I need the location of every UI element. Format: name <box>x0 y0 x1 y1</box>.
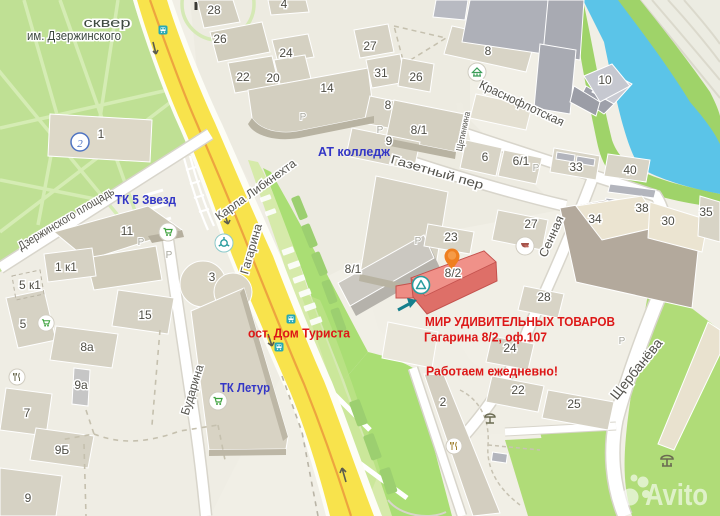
svg-text:38: 38 <box>635 201 649 215</box>
svg-text:35: 35 <box>699 205 713 219</box>
svg-text:6: 6 <box>482 150 489 164</box>
svg-text:22: 22 <box>236 70 250 84</box>
svg-text:8/1: 8/1 <box>411 123 428 137</box>
svg-text:им. Дзержинского: им. Дзержинского <box>27 28 121 43</box>
svg-text:3: 3 <box>209 270 216 284</box>
svg-text:28: 28 <box>537 290 551 304</box>
svg-text:6/1: 6/1 <box>513 154 530 168</box>
svg-text:2: 2 <box>77 138 83 150</box>
svg-text:ост. Дом Туриста: ост. Дом Туриста <box>248 326 351 341</box>
svg-text:P: P <box>166 250 173 261</box>
svg-text:33: 33 <box>569 160 583 174</box>
svg-text:Avito: Avito <box>645 477 708 512</box>
svg-text:ТК 5 Звезд: ТК 5 Звезд <box>115 192 177 207</box>
svg-text:АТ колледж: АТ колледж <box>318 144 391 159</box>
svg-text:2: 2 <box>440 395 447 409</box>
svg-text:1: 1 <box>98 127 105 141</box>
svg-text:9a: 9a <box>74 378 88 392</box>
svg-text:8: 8 <box>485 44 492 58</box>
svg-text:28: 28 <box>207 3 221 17</box>
svg-text:14: 14 <box>320 81 334 95</box>
svg-text:5: 5 <box>20 317 27 331</box>
svg-text:9: 9 <box>25 491 32 505</box>
svg-text:8/1: 8/1 <box>345 262 362 276</box>
svg-text:8a: 8a <box>80 340 94 354</box>
svg-text:25: 25 <box>567 397 581 411</box>
svg-text:20: 20 <box>266 71 280 85</box>
svg-text:P: P <box>619 336 626 347</box>
svg-text:15: 15 <box>138 308 152 322</box>
svg-text:P: P <box>138 237 145 248</box>
svg-text:P: P <box>415 236 422 247</box>
svg-text:7: 7 <box>24 406 31 420</box>
svg-text:40: 40 <box>623 163 637 177</box>
svg-text:34: 34 <box>588 212 602 226</box>
svg-text:27: 27 <box>363 39 377 53</box>
svg-text:23: 23 <box>444 230 458 244</box>
svg-text:31: 31 <box>374 66 388 80</box>
svg-text:1 к1: 1 к1 <box>55 260 77 274</box>
svg-text:5 к1: 5 к1 <box>19 278 41 292</box>
svg-text:8/2: 8/2 <box>445 266 462 280</box>
svg-text:24: 24 <box>279 46 293 60</box>
svg-text:26: 26 <box>213 32 227 46</box>
svg-text:Работаем ежедневно!: Работаем ежедневно! <box>426 364 558 379</box>
svg-text:4: 4 <box>281 0 288 11</box>
svg-text:8: 8 <box>385 98 392 112</box>
svg-text:Гагарина 8/2, оф.107: Гагарина 8/2, оф.107 <box>424 330 547 345</box>
svg-text:P: P <box>533 163 540 174</box>
svg-text:P: P <box>300 112 307 123</box>
svg-text:МИР УДИВИТЕЛЬНЫХ ТОВАРОВ: МИР УДИВИТЕЛЬНЫХ ТОВАРОВ <box>425 314 615 329</box>
svg-text:ТК Летур: ТК Летур <box>220 380 270 395</box>
svg-text:11: 11 <box>121 224 134 238</box>
svg-text:26: 26 <box>409 70 423 84</box>
svg-text:P: P <box>377 125 384 136</box>
svg-text:30: 30 <box>661 214 675 228</box>
svg-text:22: 22 <box>511 383 525 397</box>
svg-text:9Б: 9Б <box>55 443 70 457</box>
svg-text:10: 10 <box>598 73 612 87</box>
svg-text:27: 27 <box>524 217 538 231</box>
